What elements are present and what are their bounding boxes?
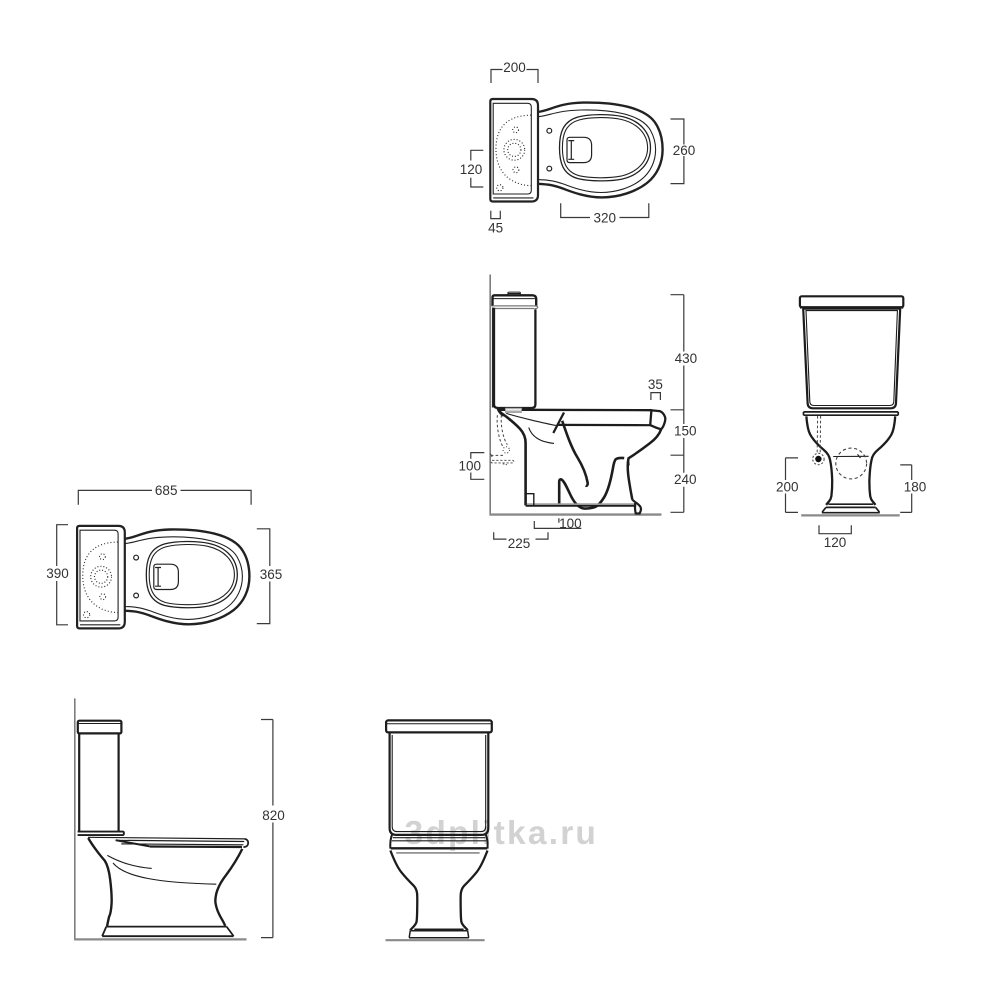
svg-text:820: 820 [262, 808, 285, 823]
svg-text:390: 390 [46, 566, 69, 581]
svg-text:430: 430 [675, 351, 698, 366]
svg-text:320: 320 [594, 210, 617, 225]
svg-text:260: 260 [673, 143, 696, 158]
svg-text:120: 120 [824, 535, 847, 550]
svg-text:180: 180 [904, 479, 927, 494]
svg-text:200: 200 [776, 479, 799, 494]
svg-text:3dplitka.ru: 3dplitka.ru [405, 815, 599, 852]
svg-text:35: 35 [648, 377, 663, 392]
svg-text:150: 150 [674, 424, 697, 439]
svg-text:240: 240 [674, 472, 697, 487]
svg-text:200: 200 [503, 60, 526, 75]
svg-text:365: 365 [260, 567, 283, 582]
svg-text:120: 120 [460, 162, 483, 177]
svg-text:685: 685 [155, 483, 178, 498]
svg-text:100: 100 [459, 458, 482, 473]
svg-text:45: 45 [488, 221, 503, 236]
svg-text:225: 225 [508, 536, 531, 551]
svg-text:100: 100 [559, 516, 582, 531]
